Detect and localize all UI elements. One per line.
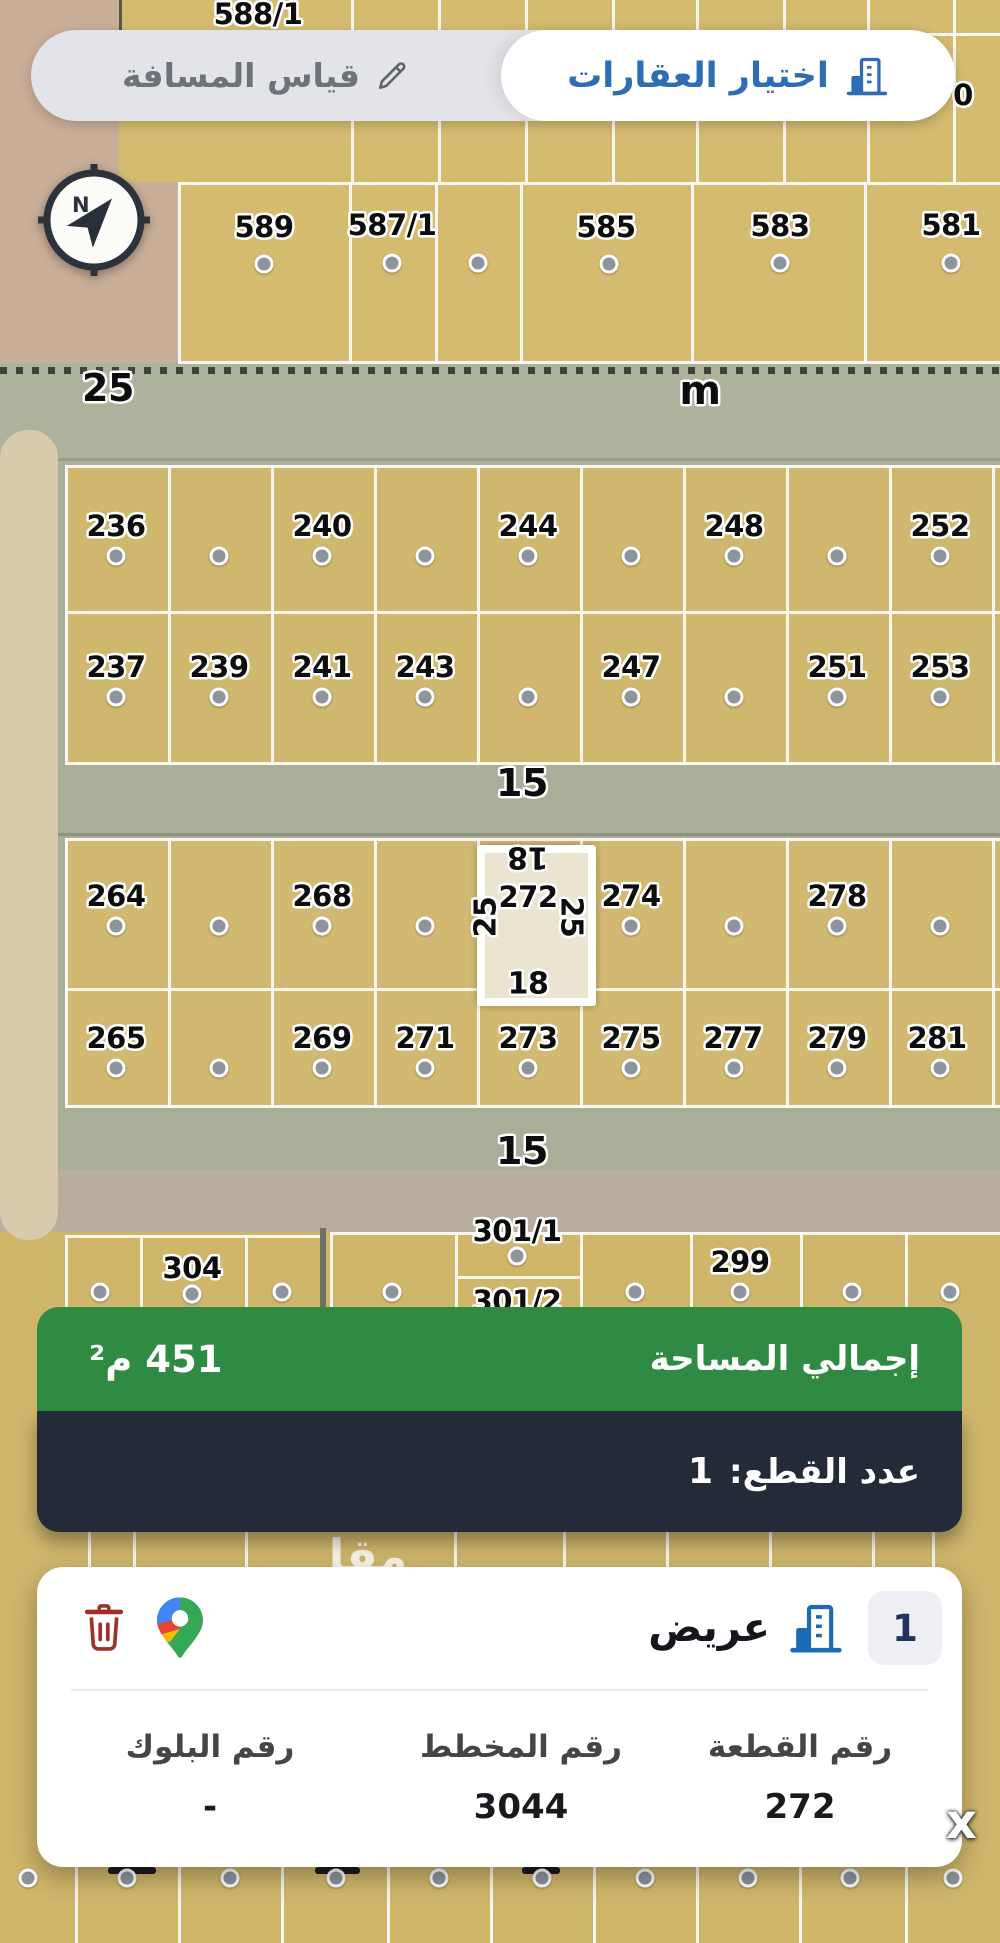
app-screen: 588/10589587/158558358125m23624024424825… bbox=[0, 0, 1000, 1943]
parcel-center-dot bbox=[469, 254, 488, 273]
field-label: رقم البلوك bbox=[100, 1729, 320, 1765]
card-divider bbox=[71, 1689, 928, 1691]
parcel-border bbox=[864, 182, 867, 363]
parcel-count-label: عدد القطع: bbox=[729, 1452, 920, 1492]
close-icon[interactable]: x bbox=[946, 1798, 977, 1846]
card-field: رقم البلوك- bbox=[100, 1729, 320, 1827]
parcel-center-dot bbox=[383, 1283, 402, 1302]
parcel-label: 248 bbox=[704, 509, 763, 543]
parcel-label: 240 bbox=[292, 509, 351, 543]
pencil-icon bbox=[374, 58, 410, 94]
field-value: 3044 bbox=[411, 1787, 631, 1827]
parcel-center-dot bbox=[533, 1869, 552, 1888]
parcel-border bbox=[872, 1532, 875, 1572]
parcel-label: 241 bbox=[292, 650, 351, 684]
parcel-label: 301/1 bbox=[473, 1214, 562, 1248]
parcel-border bbox=[374, 465, 377, 765]
dimension-label: 25 bbox=[469, 897, 504, 938]
parcel-label: 237 bbox=[86, 650, 145, 684]
parcel-center-dot bbox=[273, 1283, 292, 1302]
parcel-border bbox=[696, 1866, 699, 1943]
parcel-center-dot bbox=[107, 917, 126, 936]
parcel-center-dot bbox=[931, 688, 950, 707]
parcel-label: 299 bbox=[710, 1245, 769, 1279]
parcel-label: 279 bbox=[807, 1021, 866, 1055]
parcel-center-dot bbox=[931, 547, 950, 566]
parcel-border bbox=[520, 182, 523, 363]
field-label: رقم المخطط bbox=[411, 1729, 631, 1765]
road-edge bbox=[0, 833, 1000, 836]
parcel-border bbox=[178, 1866, 181, 1943]
parcel-center-dot bbox=[841, 1869, 860, 1888]
parcel-center-dot bbox=[519, 1059, 538, 1078]
parcel-border bbox=[65, 465, 68, 765]
parcel-border bbox=[769, 1532, 772, 1572]
parcel-border bbox=[387, 1866, 390, 1943]
parcel-center-dot bbox=[210, 547, 229, 566]
parcel-label: 239 bbox=[189, 650, 248, 684]
parcel-border bbox=[454, 1532, 457, 1572]
road-edge bbox=[320, 1228, 326, 1308]
card-actions bbox=[81, 1597, 203, 1659]
parcel-label: 247 bbox=[601, 650, 660, 684]
compass-north-label: N bbox=[72, 193, 90, 217]
terrain-edge bbox=[119, 0, 122, 34]
parcel-border bbox=[245, 1532, 248, 1572]
parcel-border bbox=[786, 465, 789, 765]
total-area-banner: إجمالي المساحة 451 م² bbox=[37, 1307, 962, 1411]
parcel-border bbox=[593, 1866, 596, 1943]
parcel-label: 581 bbox=[921, 208, 980, 242]
parcel-center-dot bbox=[383, 254, 402, 273]
total-area-label: إجمالي المساحة bbox=[650, 1339, 920, 1379]
parcel-label: 587/1 bbox=[348, 208, 437, 242]
parcel-center-dot bbox=[313, 1059, 332, 1078]
parcel-center-dot bbox=[210, 688, 229, 707]
road-label: m bbox=[679, 368, 720, 414]
parcel-label: 268 bbox=[292, 879, 351, 913]
parcel-border bbox=[330, 1232, 1000, 1235]
parcel-border bbox=[932, 1532, 935, 1572]
road-label: 15 bbox=[496, 761, 548, 805]
parcel-border bbox=[455, 1276, 580, 1279]
parcel-border bbox=[65, 1235, 320, 1238]
card-field: رقم القطعة272 bbox=[690, 1729, 910, 1827]
parcel-border bbox=[65, 838, 68, 1108]
parcel-center-dot bbox=[622, 917, 641, 936]
dimension-label: 25 bbox=[554, 897, 589, 938]
google-maps-icon[interactable] bbox=[157, 1597, 203, 1659]
terrain-wash bbox=[0, 430, 58, 1240]
parcel-center-dot bbox=[626, 1283, 645, 1302]
parcel-border bbox=[75, 1866, 78, 1943]
parcel-center-dot bbox=[519, 688, 538, 707]
mode-toolbar: قياس المسافة اختيار العقارات bbox=[31, 30, 955, 121]
parcel-border bbox=[168, 465, 171, 765]
parcel-border bbox=[889, 838, 892, 1108]
parcel-label: 273 bbox=[498, 1021, 557, 1055]
parcel-border bbox=[563, 1532, 566, 1572]
parcel-border bbox=[65, 1105, 1000, 1108]
compass-button[interactable]: N bbox=[36, 162, 152, 278]
parcel-border bbox=[65, 611, 1000, 614]
parcel-label: 585 bbox=[576, 210, 635, 244]
parcel-center-dot bbox=[771, 254, 790, 273]
parcel-center-dot bbox=[622, 1059, 641, 1078]
parcel-border bbox=[271, 465, 274, 765]
parcel-center-dot bbox=[931, 917, 950, 936]
parcel-center-dot bbox=[313, 917, 332, 936]
parcel-label: 236 bbox=[86, 509, 145, 543]
parcel-border bbox=[281, 1866, 284, 1943]
field-label: رقم القطعة bbox=[690, 1729, 910, 1765]
parcel-border bbox=[88, 1532, 91, 1572]
parcel-center-dot bbox=[107, 547, 126, 566]
parcel-center-dot bbox=[430, 1869, 449, 1888]
parcel-border bbox=[65, 465, 1000, 468]
card-field: رقم المخطط3044 bbox=[411, 1729, 631, 1827]
parcel-center-dot bbox=[828, 1059, 847, 1078]
card-header-row: 1 عريض bbox=[37, 1567, 962, 1665]
parcel-label: 275 bbox=[601, 1021, 660, 1055]
parcel-label: 304 bbox=[162, 1251, 221, 1285]
parcel-border bbox=[666, 1532, 669, 1572]
measure-tab-label: قياس المسافة bbox=[122, 56, 360, 95]
parcel-center-dot bbox=[622, 688, 641, 707]
parcel-center-dot bbox=[107, 688, 126, 707]
parcel-center-dot bbox=[944, 1869, 963, 1888]
parcel-center-dot bbox=[313, 547, 332, 566]
parcel-label: 251 bbox=[807, 650, 866, 684]
parcel-center-dot bbox=[725, 688, 744, 707]
parcel-border bbox=[992, 465, 995, 765]
parcel-label: 0 bbox=[953, 78, 973, 112]
parcel-label: 583 bbox=[750, 209, 809, 243]
parcel-border bbox=[178, 182, 1000, 185]
parcel-border bbox=[477, 465, 480, 765]
parcel-label: 281 bbox=[907, 1021, 966, 1055]
parcel-label: 589 bbox=[234, 210, 293, 244]
parcel-center-dot bbox=[416, 1059, 435, 1078]
parcel-label: 253 bbox=[910, 650, 969, 684]
parcel-border bbox=[133, 1532, 136, 1572]
parcel-center-dot bbox=[731, 1283, 750, 1302]
trash-icon[interactable] bbox=[81, 1601, 127, 1655]
parcel-border bbox=[580, 465, 583, 765]
parcel-center-dot bbox=[210, 917, 229, 936]
parcel-label: 244 bbox=[498, 509, 557, 543]
parcel-border bbox=[178, 182, 181, 363]
parcel-border bbox=[683, 838, 686, 1108]
parcel-center-dot bbox=[508, 1247, 527, 1266]
parcel-center-dot bbox=[828, 917, 847, 936]
parcel-border bbox=[992, 838, 995, 1108]
parcel-label: 588/1 bbox=[214, 0, 303, 31]
parcel-label: 252 bbox=[910, 509, 969, 543]
parcel-border bbox=[271, 838, 274, 1108]
parcel-center-dot bbox=[931, 1059, 950, 1078]
parcel-center-dot bbox=[183, 1285, 202, 1304]
parcel-border bbox=[683, 465, 686, 765]
parcel-center-dot bbox=[843, 1283, 862, 1302]
parcel-border bbox=[786, 838, 789, 1108]
parcel-center-dot bbox=[416, 547, 435, 566]
parcel-center-dot bbox=[327, 1869, 346, 1888]
parcel-center-dot bbox=[107, 1059, 126, 1078]
tab-select-properties[interactable]: اختيار العقارات bbox=[501, 30, 955, 121]
parcel-label: 278 bbox=[807, 879, 866, 913]
parcel-label: 269 bbox=[292, 1021, 351, 1055]
total-area-value: 451 م² bbox=[89, 1338, 222, 1381]
parcel-center-dot bbox=[636, 1869, 655, 1888]
dimension-label: 18 bbox=[508, 967, 549, 1002]
road-label: 15 bbox=[496, 1129, 548, 1173]
parcel-count-value: 1 bbox=[688, 1451, 713, 1492]
parcel-label: 264 bbox=[86, 879, 145, 913]
parcel-center-dot bbox=[739, 1869, 758, 1888]
tab-measure-distance[interactable]: قياس المسافة bbox=[31, 30, 501, 121]
parcel-center-dot bbox=[941, 1283, 960, 1302]
parcel-center-dot bbox=[600, 255, 619, 274]
road-dashed-line bbox=[0, 367, 1000, 374]
parcel-label: 265 bbox=[86, 1021, 145, 1055]
parcel-center-dot bbox=[313, 688, 332, 707]
parcel-border bbox=[178, 361, 1000, 364]
parcel-label: 277 bbox=[703, 1021, 762, 1055]
parcel-center-dot bbox=[416, 688, 435, 707]
parcel-label: 243 bbox=[395, 650, 454, 684]
dimension-label: 18 bbox=[508, 840, 549, 875]
road bbox=[0, 363, 1000, 465]
parcel-border bbox=[905, 1866, 908, 1943]
parcel-count-banner: عدد القطع: 1 bbox=[37, 1411, 962, 1532]
parcel-center-dot bbox=[942, 254, 961, 273]
district-name: عريض bbox=[648, 1605, 770, 1651]
parcel-center-dot bbox=[416, 917, 435, 936]
buildings-icon bbox=[788, 1600, 844, 1656]
parcel-label: 274 bbox=[601, 879, 660, 913]
parcel-index-badge: 1 bbox=[868, 1591, 942, 1665]
parcel-center-dot bbox=[91, 1283, 110, 1302]
parcel-label: 271 bbox=[395, 1021, 454, 1055]
parcel-center-dot bbox=[622, 547, 641, 566]
parcel-center-dot bbox=[828, 547, 847, 566]
parcel-center-dot bbox=[255, 255, 274, 274]
field-value: 272 bbox=[690, 1787, 910, 1827]
parcel-detail-card: 1 عريض bbox=[37, 1567, 962, 1867]
parcel-center-dot bbox=[221, 1869, 240, 1888]
parcel-center-dot bbox=[725, 917, 744, 936]
parcel-center-dot bbox=[118, 1869, 137, 1888]
parcel-center-dot bbox=[725, 1059, 744, 1078]
road-label: 25 bbox=[82, 366, 134, 410]
parcel-border bbox=[490, 1866, 493, 1943]
parcel-border bbox=[889, 465, 892, 765]
parcel-center-dot bbox=[828, 688, 847, 707]
selected-parcel-label: 272 bbox=[498, 880, 557, 914]
parcel-center-dot bbox=[210, 1059, 229, 1078]
parcel-center-dot bbox=[725, 547, 744, 566]
parcel-border bbox=[374, 838, 377, 1108]
buildings-icon bbox=[845, 54, 889, 98]
road-edge bbox=[0, 458, 1000, 461]
field-value: - bbox=[100, 1787, 320, 1827]
parcel-border bbox=[691, 182, 694, 363]
parcel-border bbox=[168, 838, 171, 1108]
select-tab-label: اختيار العقارات bbox=[567, 56, 829, 96]
parcel-center-dot bbox=[519, 547, 538, 566]
parcel-center-dot bbox=[19, 1869, 38, 1888]
parcel-border bbox=[799, 1866, 802, 1943]
